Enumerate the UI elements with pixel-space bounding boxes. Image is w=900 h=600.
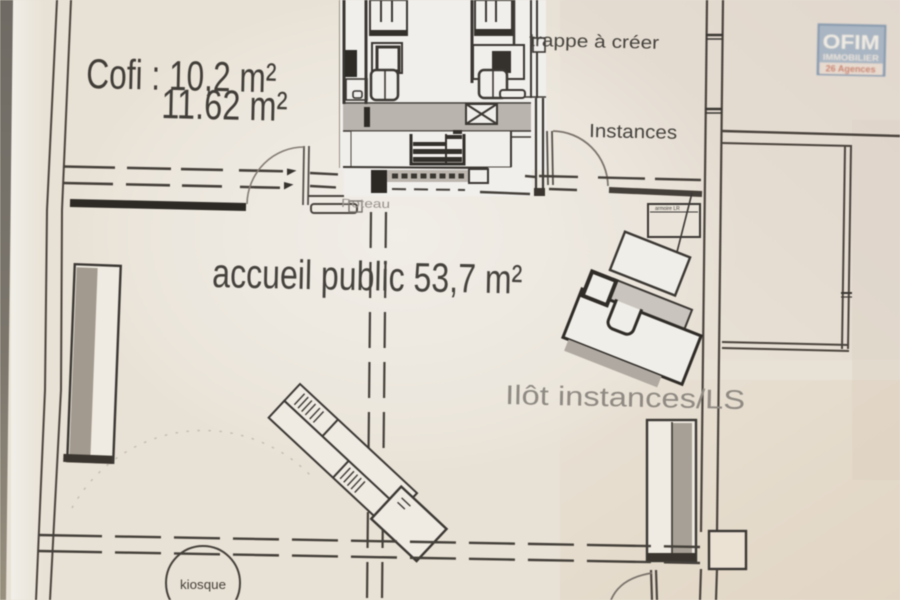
svg-text:11.62 m²: 11.62 m² — [161, 80, 288, 130]
svg-text:trappe à créer: trappe à créer — [529, 30, 659, 53]
svg-text:Poteau: Poteau — [341, 196, 390, 211]
svg-text:armoire LR: armoire LR — [655, 206, 680, 212]
svg-text:Ilôt instances/LS: Ilôt instances/LS — [505, 380, 746, 415]
svg-text:Instances: Instances — [589, 121, 677, 144]
svg-text:26 Agences: 26 Agences — [825, 63, 875, 75]
svg-text:accueil public 53,7 m²: accueil public 53,7 m² — [212, 250, 523, 302]
svg-text:IMMOBILIER: IMMOBILIER — [823, 52, 879, 63]
svg-text:kiosque: kiosque — [180, 578, 226, 592]
